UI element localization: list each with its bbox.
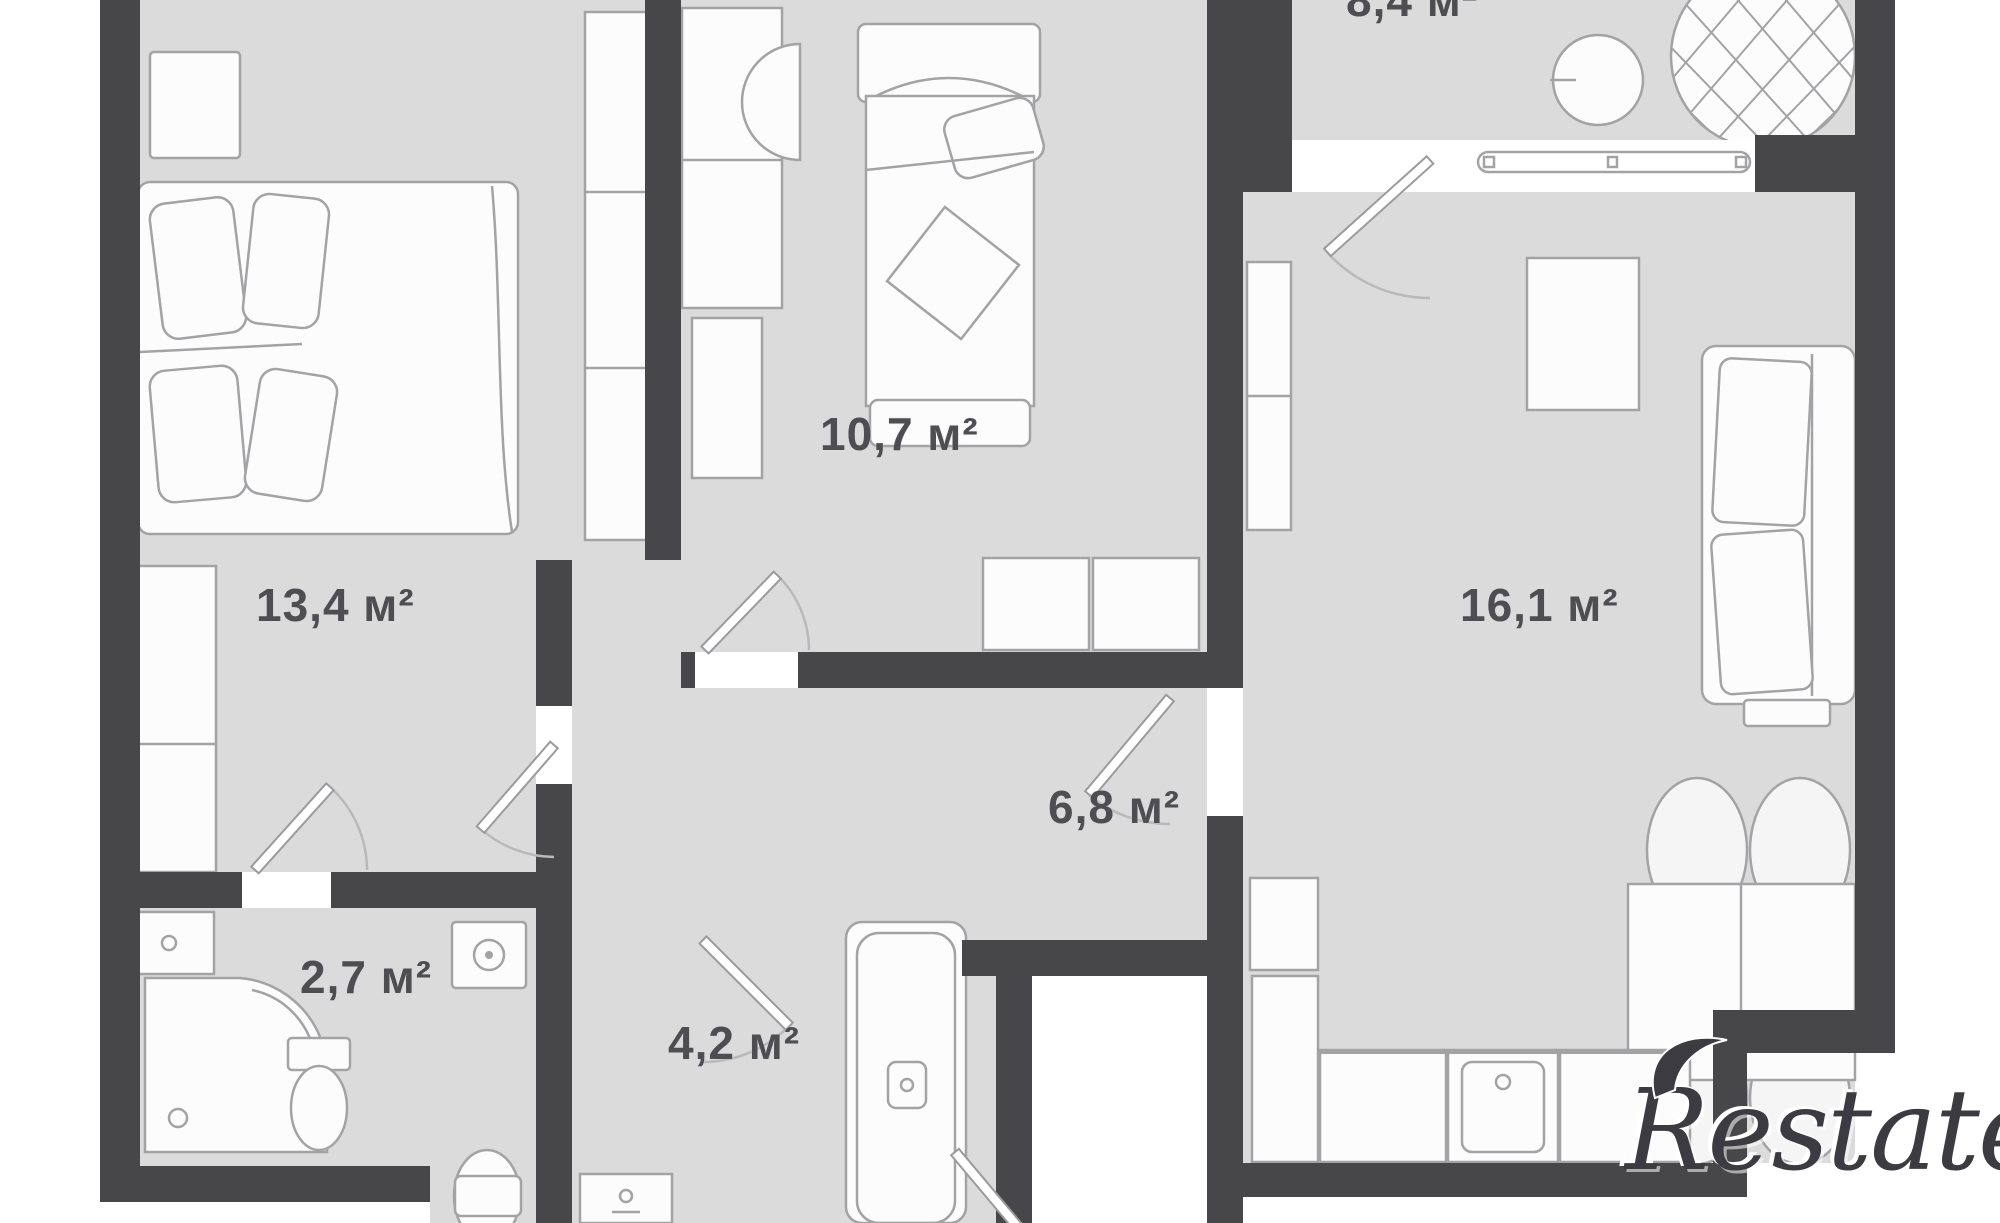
window-railing-icon: [1478, 152, 1750, 172]
bathtub-icon: [846, 922, 966, 1223]
closet-icon: [1247, 262, 1291, 530]
area-label-living-kitchen: 16,1 м²: [1460, 578, 1619, 632]
nightstand-icon: [150, 52, 240, 158]
floorplan-page: { "floor_plan": { "watermark_text": "Res…: [0, 0, 2000, 1223]
area-label-bathroom: 4,2 м²: [668, 1016, 800, 1070]
watermark-swoosh-icon: [1641, 1030, 1761, 1102]
area-label-bedroom-small: 10,7 м²: [820, 407, 979, 461]
wardrobe-icon: [585, 12, 649, 540]
tv-stand-icon: [1527, 258, 1639, 410]
watermark: Restate: [1625, 1066, 2000, 1196]
area-label-room-top-cut: 8,4 м²: [1346, 0, 1478, 27]
area-label-bedroom-large: 13,4 м²: [256, 578, 415, 632]
shaft: [1032, 976, 1207, 1223]
washing-machine-icon: [452, 922, 526, 988]
single-bed-icon: [858, 24, 1047, 446]
sofa-icon: [1702, 346, 1855, 726]
area-label-shower-room: 2,7 м²: [300, 950, 432, 1004]
area-label-hallway: 6,8 м²: [1048, 780, 1180, 834]
toilet-icon: [288, 1038, 350, 1150]
bathroom-sink-icon: [580, 1174, 672, 1223]
